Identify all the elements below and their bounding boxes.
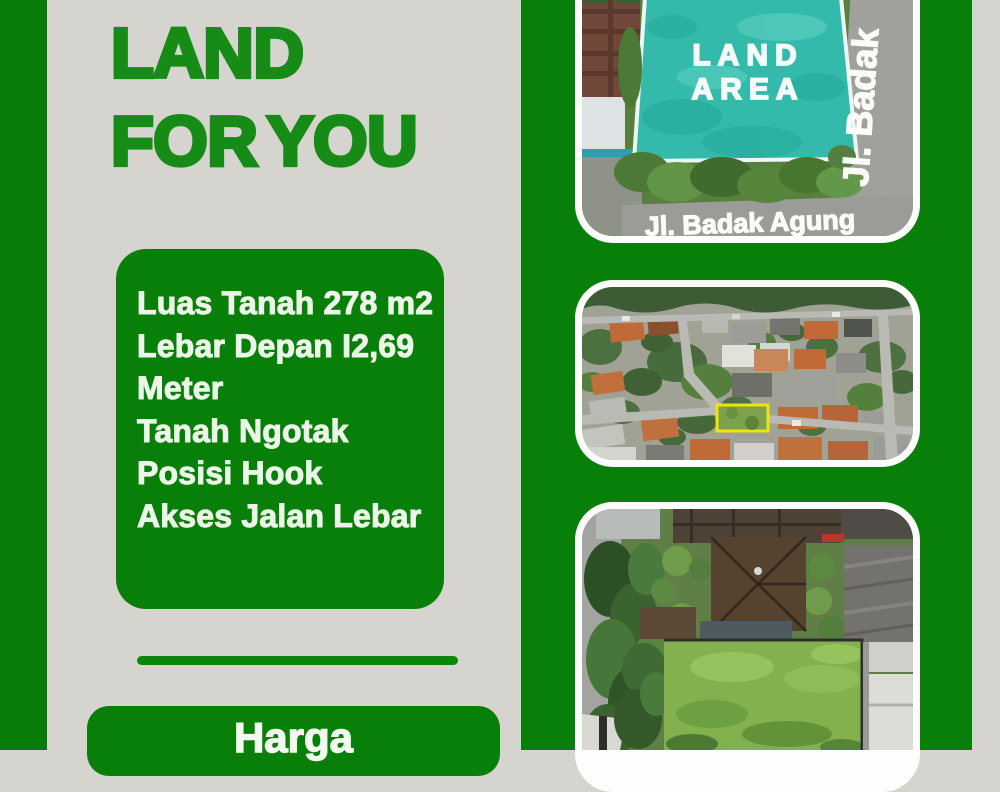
svg-text:LAND: LAND: [692, 39, 803, 72]
svg-text:AREA: AREA: [691, 73, 804, 106]
